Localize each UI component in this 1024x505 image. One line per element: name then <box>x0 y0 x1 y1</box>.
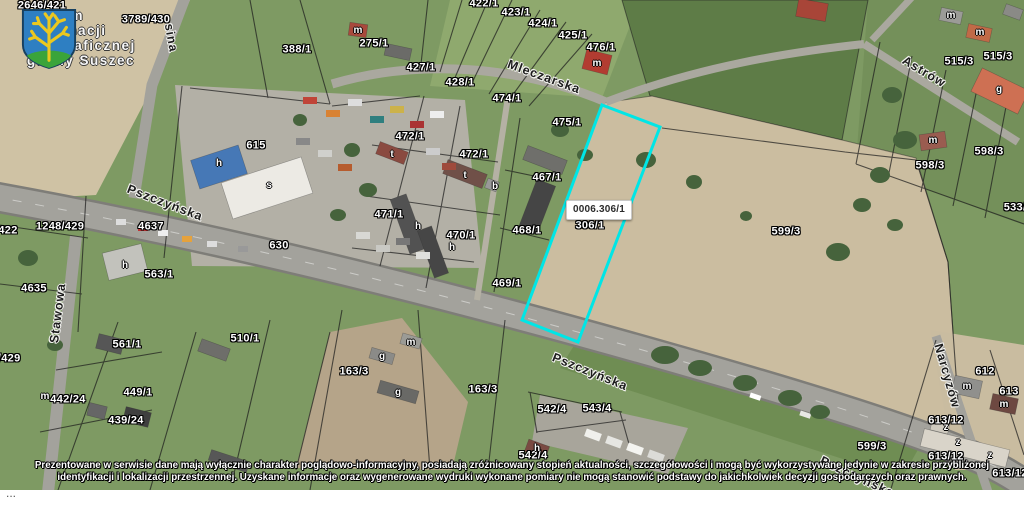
parcel-label: 422 <box>0 226 18 237</box>
parcel-label: 599/3 <box>857 442 886 453</box>
parcel-label: 467/1 <box>532 173 561 184</box>
parcel-label: 163/3 <box>468 385 497 396</box>
parcel-label: 428/1 <box>445 78 474 89</box>
parcel-label: 425/1 <box>558 31 587 42</box>
parcel-label: 515/3 <box>983 52 1012 63</box>
parcel-label: 471/1 <box>374 210 403 221</box>
building-label: z <box>944 423 949 433</box>
parcel-label: 423/1 <box>501 8 530 19</box>
parcel-label: 163/3 <box>339 367 368 378</box>
parcel-label: 9/429 <box>0 354 21 365</box>
building-label: m <box>976 28 985 38</box>
parcel-label: 449/1 <box>123 388 152 399</box>
parcel-label: 510/1 <box>230 334 259 345</box>
parcel-label: 613 <box>999 387 1018 398</box>
parcel-label: 533/ <box>1004 203 1024 214</box>
parcel-label: 469/1 <box>492 279 521 290</box>
building-label: m <box>963 382 972 392</box>
building-label: m <box>354 26 363 36</box>
parcel-label: 475/1 <box>552 118 581 129</box>
parcel-label: 439/24 <box>108 416 143 427</box>
parcel-label: 612 <box>975 367 994 378</box>
building-label: m <box>947 11 956 21</box>
parcel-label: 615 <box>246 141 265 152</box>
parcel-label: 306/1 <box>575 221 604 232</box>
building-label: g <box>996 85 1002 95</box>
building-label: z <box>956 438 961 448</box>
parcel-label: 598/3 <box>915 161 944 172</box>
disclaimer-line-2: identyfikacji i lokalizacji przestrzenne… <box>0 472 1024 484</box>
parcel-label: 4637 <box>138 222 164 233</box>
building-label: m <box>41 392 50 402</box>
building-label: t <box>463 171 466 181</box>
parcel-label: 563/1 <box>144 270 173 281</box>
parcel-label: 543/4 <box>582 404 611 415</box>
parcel-label: 4635 <box>21 284 47 295</box>
parcel-label: 468/1 <box>512 226 541 237</box>
parcel-label: 598/3 <box>974 147 1003 158</box>
building-label: h <box>122 261 128 271</box>
aerial-imagery <box>0 0 1024 490</box>
building-label: g <box>379 352 385 362</box>
parcel-label: 561/1 <box>112 340 141 351</box>
coat-of-arms-icon <box>20 8 78 70</box>
building-label: m <box>407 338 416 348</box>
building-label: m <box>593 59 602 69</box>
map-canvas[interactable]: 2646/4213789/430388/1275/1427/1428/1422/… <box>0 0 1024 490</box>
building-label: h <box>534 444 540 454</box>
parcel-label: 1248/429 <box>36 222 84 233</box>
municipality-logo: System Informacji Geograficznej gminy Su… <box>20 8 136 68</box>
building-label: h <box>449 243 455 253</box>
building-label: m <box>929 136 938 146</box>
building-label: g <box>395 388 401 398</box>
parcel-label: 427/1 <box>406 63 435 74</box>
footer-strip: ... <box>0 490 1024 505</box>
parcel-label: 275/1 <box>359 39 388 50</box>
identify-label: 0006.306/1 <box>566 200 632 220</box>
building-label: m <box>1000 400 1009 410</box>
parcel-label: 472/1 <box>395 132 424 143</box>
footer-ellipsis: ... <box>6 487 16 499</box>
parcel-label: 542/4 <box>537 405 566 416</box>
building-label: s <box>266 181 272 191</box>
disclaimer-line-1: Prezentowane w serwisie dane mają wyłącz… <box>0 460 1024 472</box>
building-label: h <box>415 222 421 232</box>
parcel-label: 630 <box>269 241 288 252</box>
building-label: b <box>492 182 498 192</box>
parcel-label: 422/1 <box>469 0 498 10</box>
parcel-label: 515/3 <box>944 57 973 68</box>
gis-viewer-window: 2646/4213789/430388/1275/1427/1428/1422/… <box>0 0 1024 505</box>
parcel-label: 388/1 <box>282 45 311 56</box>
parcel-label: 470/1 <box>446 231 475 242</box>
parcel-label: 476/1 <box>586 43 615 54</box>
parcel-label: 599/3 <box>771 227 800 238</box>
parcel-label: 474/1 <box>492 94 521 105</box>
building-label: t <box>390 150 393 160</box>
parcel-label: 424/1 <box>528 19 557 30</box>
parcel-label: 442/24 <box>50 395 85 406</box>
building-label: h <box>216 159 222 169</box>
parcel-label: 472/1 <box>459 150 488 161</box>
